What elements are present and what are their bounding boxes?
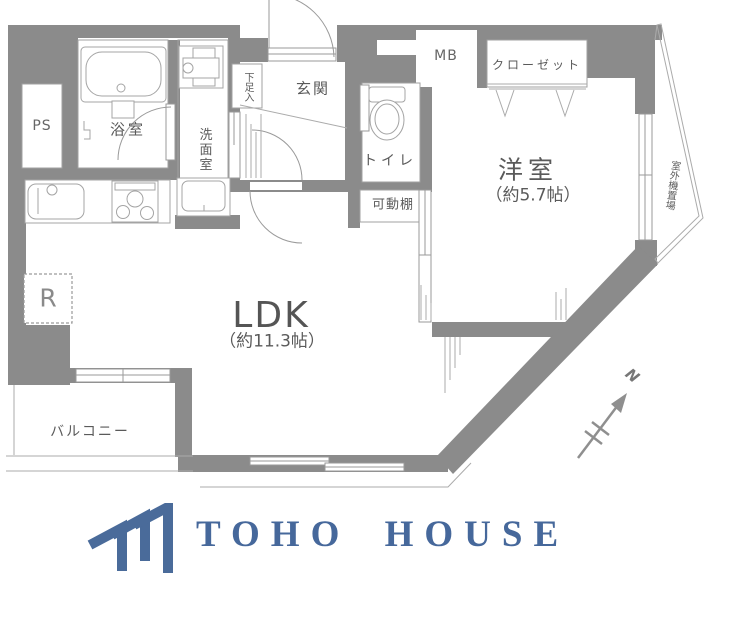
- stove-icon: [112, 181, 158, 222]
- hall-door-arc: [252, 130, 302, 180]
- vanity-basin-icon: [177, 178, 230, 216]
- hall-cabinet-lines: [246, 114, 261, 178]
- label-closet: クローゼット: [492, 59, 582, 71]
- label-toilet: トイレ: [363, 154, 417, 168]
- toilet-door: [360, 85, 369, 131]
- label-mb: MB: [434, 49, 458, 63]
- label-ldk-size: （約11.3帖）: [219, 334, 325, 351]
- label-western-room: 洋室: [498, 158, 558, 183]
- balcony-window: [76, 369, 170, 382]
- toilet-icon: [369, 87, 405, 140]
- north-arrow-icon: [578, 393, 627, 458]
- washroom-sliding-door: [229, 112, 240, 178]
- label-western-room-size: （約5.7帖）: [485, 188, 580, 205]
- label-shoe-box: 下足入: [242, 72, 252, 102]
- entrance-door: [268, 0, 336, 61]
- label-washroom: 洗面室: [198, 128, 211, 173]
- toho-house-logo-text: TOHO HOUSE: [196, 513, 569, 556]
- ldk-door-arc: [250, 191, 302, 243]
- label-balcony: バルコニー: [50, 425, 130, 439]
- toho-house-logo-mark-icon: [84, 503, 194, 593]
- kitchen-sink-icon: [28, 184, 84, 219]
- closet-hangers: [487, 84, 587, 116]
- entrance-step-line: [240, 105, 347, 128]
- kitchen-counter-icon: [25, 180, 170, 223]
- outdoor-unit-outline: [655, 24, 703, 263]
- label-ps: PS: [32, 119, 51, 133]
- western-room-window: [639, 114, 652, 240]
- label-movable-shelf: 可動棚: [372, 199, 414, 212]
- label-entrance: 玄関: [296, 82, 330, 97]
- floorplan-page: PS 浴室 洗面室 下足入 玄関 MB クローゼット トイレ 可動棚 洋室 （約…: [0, 0, 750, 630]
- label-ldk: LDK: [232, 298, 309, 334]
- shower-fixture-icon: [84, 121, 90, 139]
- label-bath: 浴室: [110, 123, 146, 138]
- washer-pan-icon: [179, 46, 223, 88]
- label-refrigerator: R: [39, 286, 56, 311]
- toho-house-logo: TOHO HOUSE: [0, 495, 750, 605]
